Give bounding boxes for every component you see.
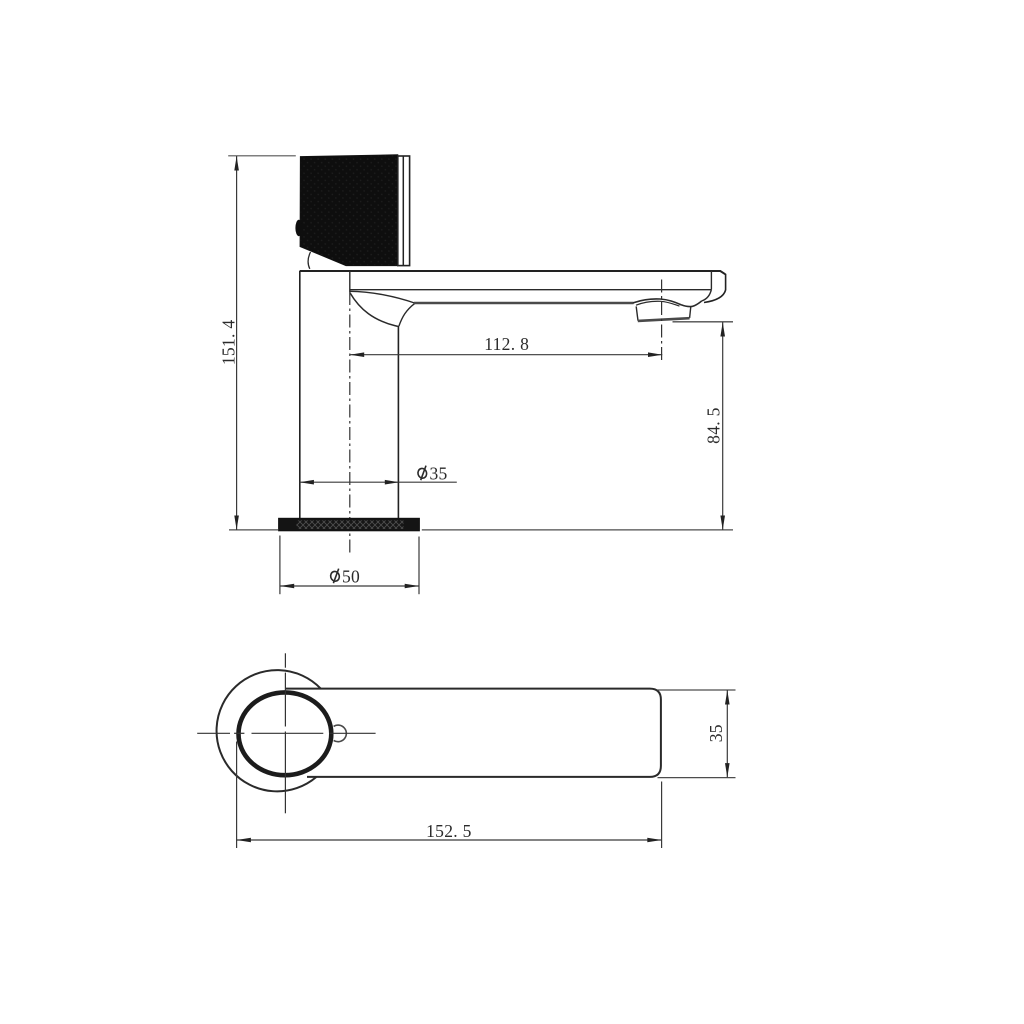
svg-text:35: 35 — [706, 724, 726, 742]
svg-text:112. 8: 112. 8 — [484, 334, 529, 354]
svg-text:50: 50 — [342, 566, 360, 586]
svg-text:151. 4: 151. 4 — [218, 320, 238, 366]
svg-text:152. 5: 152. 5 — [426, 821, 472, 841]
svg-text:84. 5: 84. 5 — [703, 407, 723, 444]
svg-text:35: 35 — [430, 463, 448, 483]
